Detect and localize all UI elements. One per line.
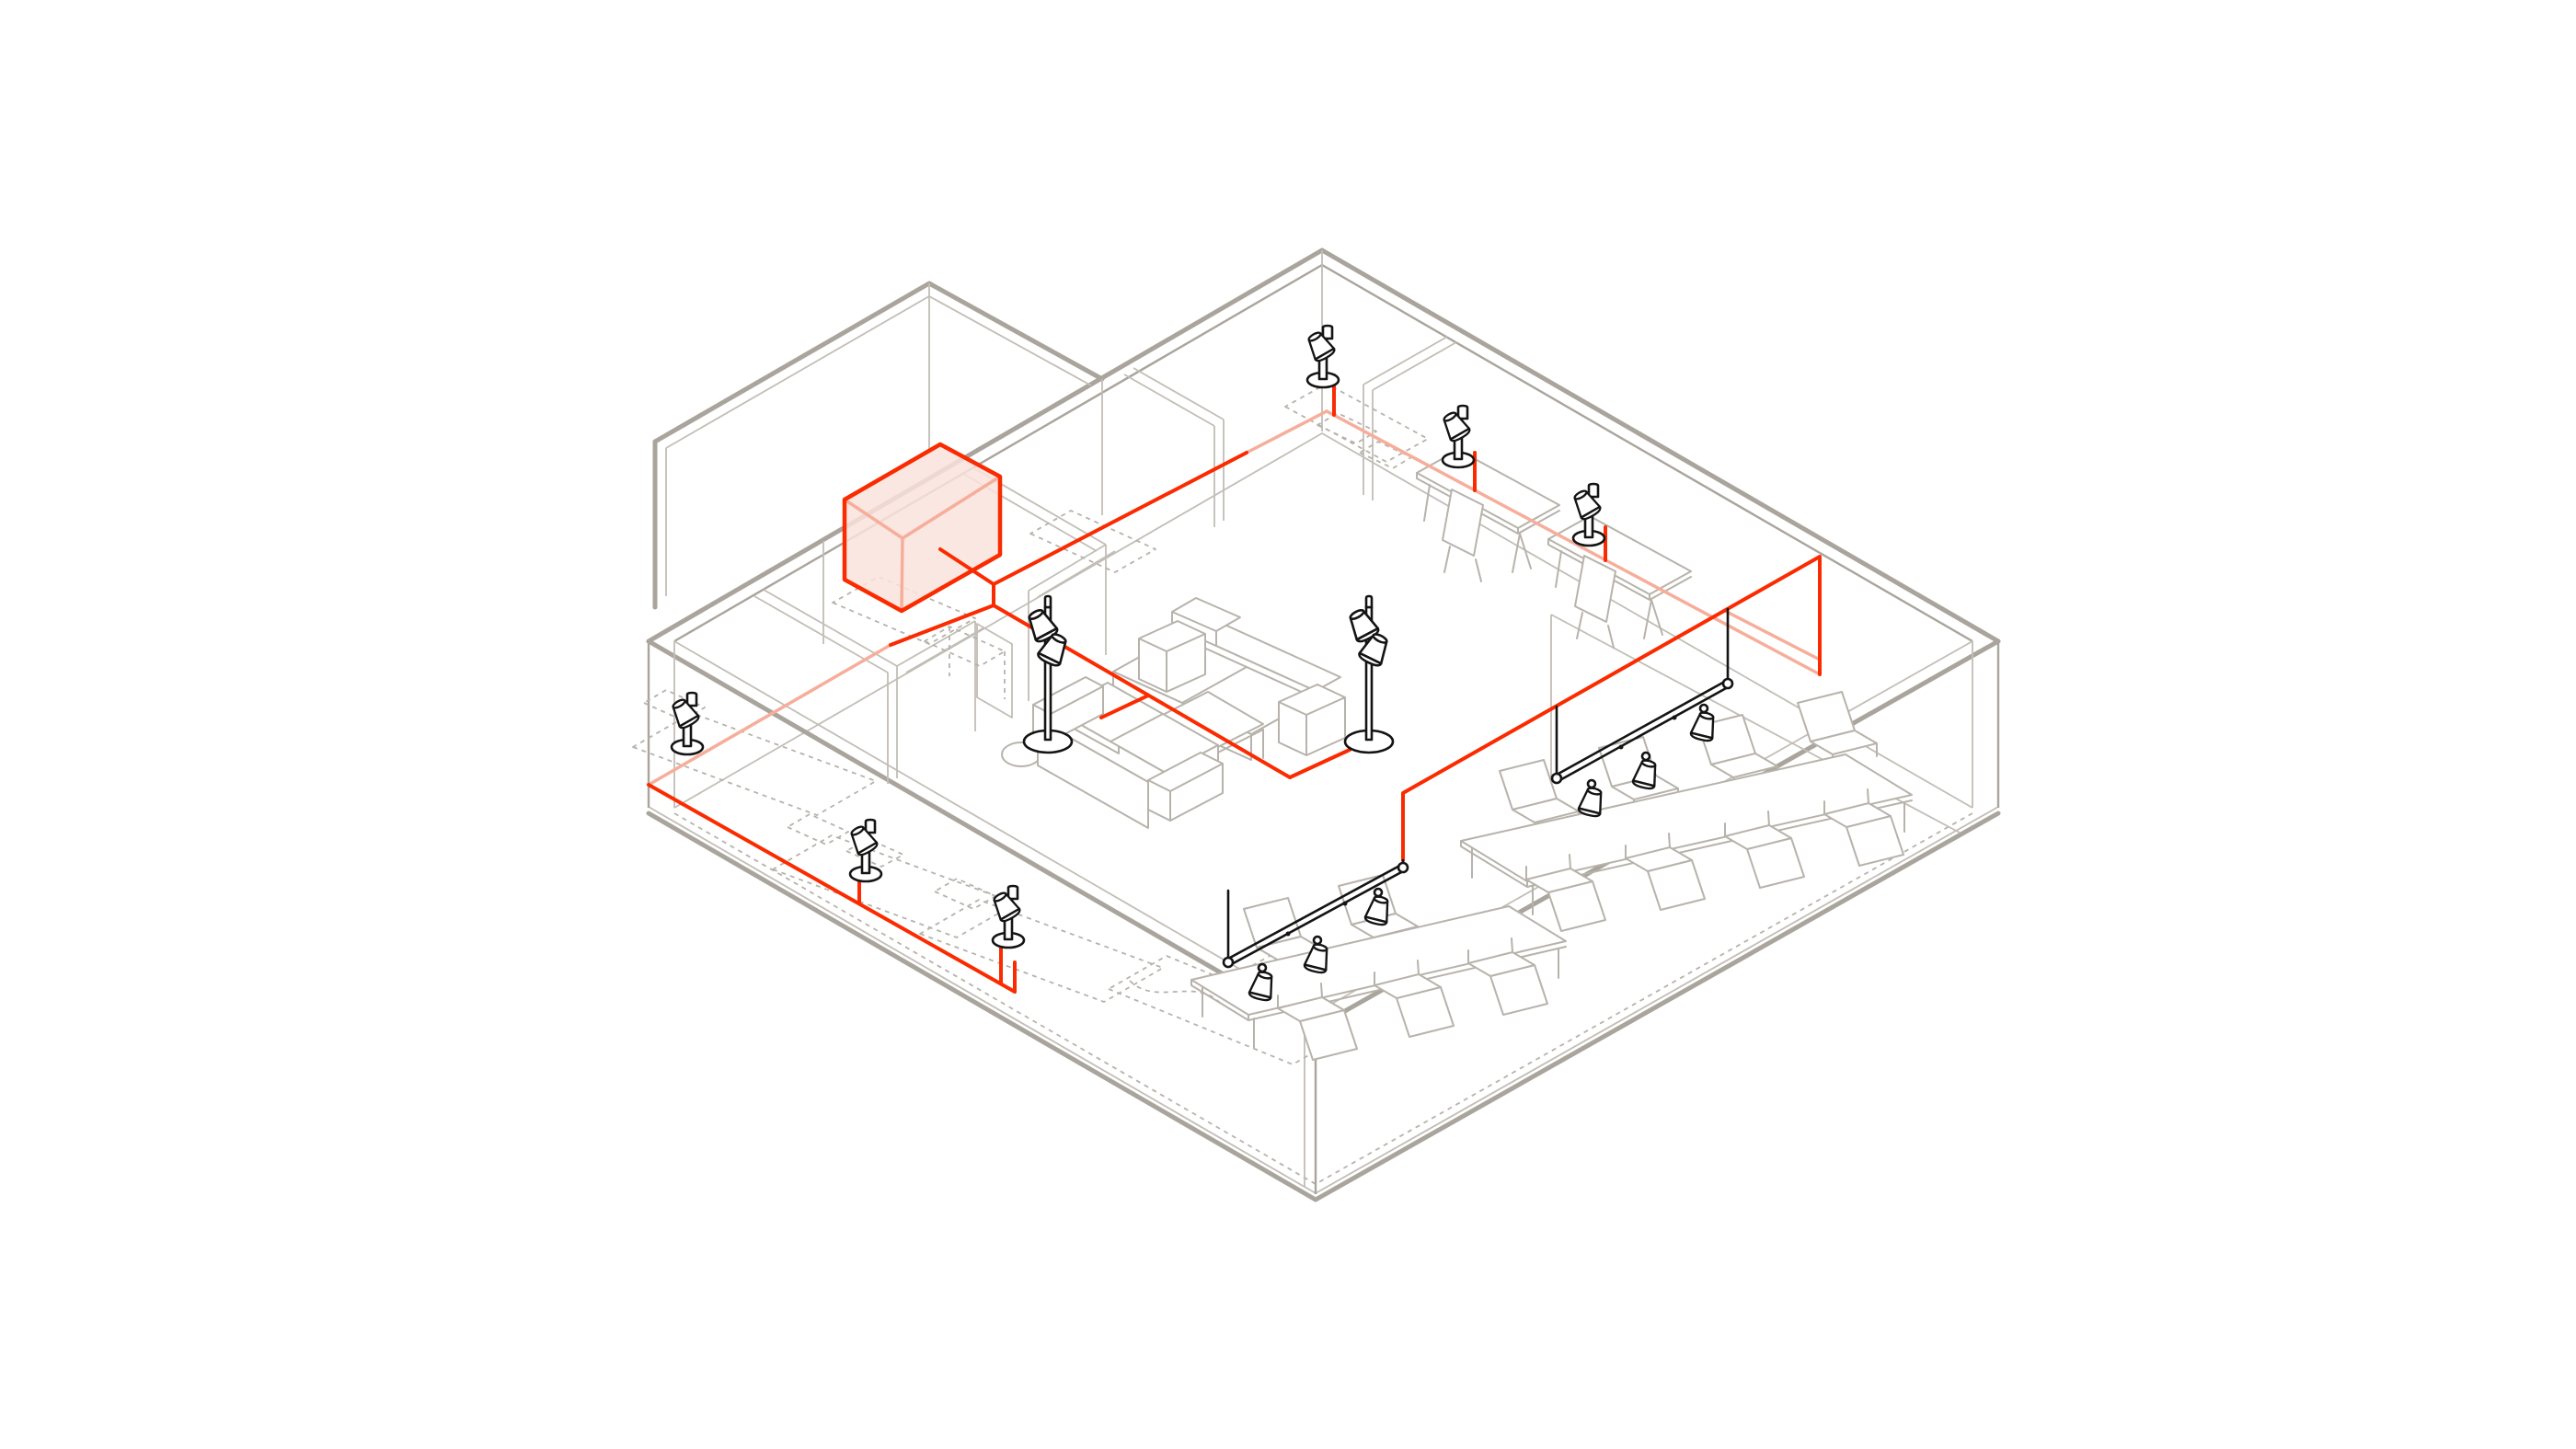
vestibule-walls-top-inner xyxy=(666,296,1091,448)
track-2-end xyxy=(1398,863,1408,872)
door-leaf xyxy=(977,624,1012,718)
partition-left-a xyxy=(754,590,897,673)
partition-top-left xyxy=(1124,368,1224,527)
desk-lamp-ne-1 xyxy=(1304,326,1339,387)
dashed-desk-3 xyxy=(920,900,1163,1002)
floor-lamp-2 xyxy=(1345,596,1393,753)
wire-nw-base xyxy=(994,453,1247,584)
desk-3-chair xyxy=(1575,556,1616,648)
electrical-junction-box xyxy=(845,444,1000,611)
dashed-room-b-desk xyxy=(1030,511,1156,572)
wire-hidden-right xyxy=(1725,611,1820,660)
dashed-chair-3 xyxy=(935,879,995,909)
isometric-electrical-diagram xyxy=(0,0,2576,1449)
table-1-group xyxy=(1461,692,1912,931)
track-1-end xyxy=(1723,679,1732,688)
dashed-desk-1 xyxy=(633,713,876,815)
diagram-canvas xyxy=(0,0,2576,1449)
wire-hidden-nw xyxy=(1247,411,1327,453)
track-1-end xyxy=(1552,774,1561,783)
junction-box-fill xyxy=(845,444,1000,611)
desk-lamp-ne-3 xyxy=(1570,484,1604,546)
wire-hidden-ne-run xyxy=(1327,411,1820,674)
dashed-chairs-top xyxy=(1317,413,1411,468)
desk-2-chair xyxy=(1443,489,1483,581)
wire-sw-run-risers xyxy=(649,785,1015,992)
desk-lamp-ne-2 xyxy=(1439,406,1474,467)
desk-lamp-sw-2 xyxy=(846,820,881,881)
track-2-end xyxy=(1224,958,1233,967)
